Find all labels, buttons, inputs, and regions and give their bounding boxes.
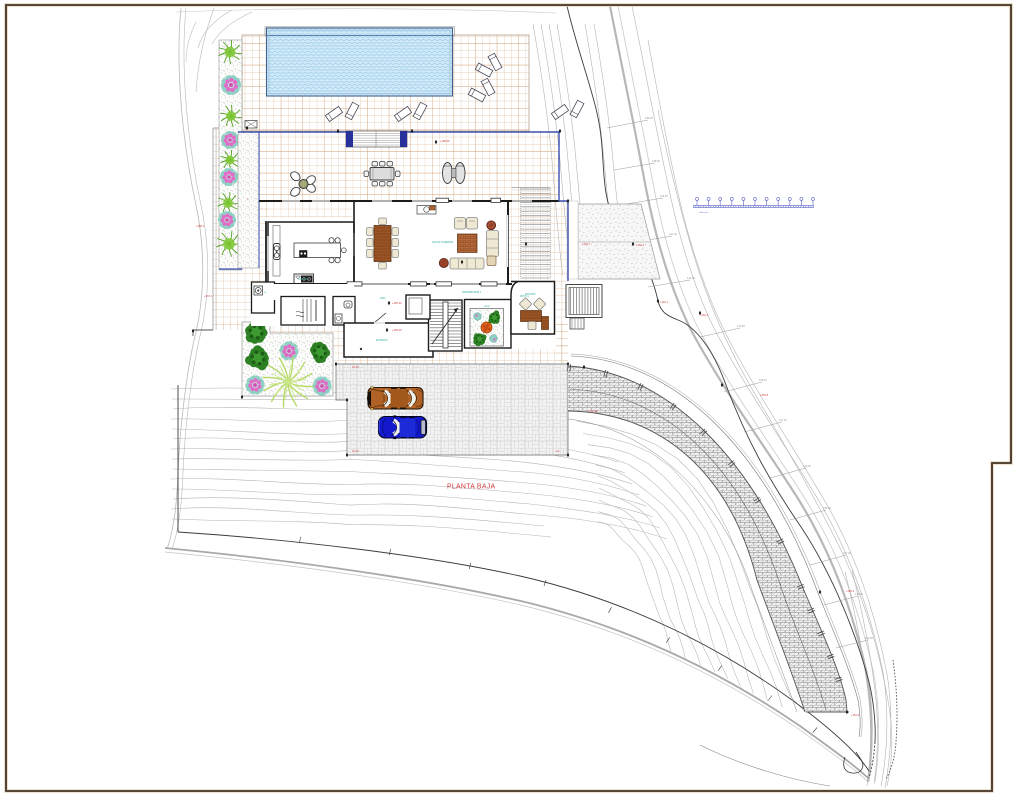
svg-text:117.00: 117.00: [779, 418, 787, 422]
svg-text:+167.4: +167.4: [204, 294, 213, 298]
svg-text:PATIO 1: PATIO 1: [520, 295, 529, 298]
svg-text:PLANTA BAJA: PLANTA BAJA: [447, 484, 495, 491]
svg-text:184.00: 184.00: [645, 116, 653, 120]
svg-text:149.00: 149.00: [803, 464, 811, 468]
svg-text:Valla met.: Valla met.: [699, 211, 709, 214]
svg-text:ENTRADA: ENTRADA: [376, 339, 388, 342]
svg-text:+155.2: +155.2: [846, 589, 855, 593]
svg-text:16.40: 16.40: [352, 449, 359, 453]
svg-text:+168.00: +168.00: [440, 139, 450, 143]
svg-text:+163.1: +163.1: [660, 300, 669, 304]
svg-text:+159.8: +159.8: [760, 393, 769, 397]
svg-text:+164.2: +164.2: [636, 243, 645, 247]
svg-text:+162.7: +162.7: [582, 242, 591, 246]
svg-text:144.00: 144.00: [687, 276, 695, 280]
svg-text:+165.30: +165.30: [392, 328, 402, 332]
svg-text:PATIO: PATIO: [484, 305, 491, 308]
svg-text:COCINA: COCINA: [298, 278, 308, 281]
svg-text:+161.30: +161.30: [588, 409, 598, 413]
svg-text:121.00: 121.00: [669, 232, 677, 236]
svg-text:167.00: 167.00: [843, 551, 851, 555]
svg-text:16.40: 16.40: [352, 365, 359, 369]
svg-text:+151.9: +151.9: [851, 713, 860, 717]
svg-text:159.00: 159.00: [865, 636, 873, 640]
svg-text:4.1: 4.1: [556, 449, 560, 453]
svg-text:170.00: 170.00: [737, 324, 745, 328]
svg-text:183.00: 183.00: [823, 506, 831, 510]
svg-text:+165.30: +165.30: [392, 301, 402, 305]
svg-text:168.00: 168.00: [652, 159, 660, 163]
svg-text:+162.4: +162.4: [700, 313, 709, 317]
svg-text:118.00: 118.00: [759, 378, 767, 382]
svg-text:118.00: 118.00: [660, 194, 668, 198]
svg-text:HALL: HALL: [380, 297, 387, 300]
svg-text:SALON COMEDOR: SALON COMEDOR: [432, 241, 454, 244]
svg-text:+168.1: +168.1: [196, 224, 205, 228]
svg-text:DISTRIBUIDOR 1: DISTRIBUIDOR 1: [462, 291, 482, 294]
svg-text:146.00: 146.00: [855, 592, 863, 596]
